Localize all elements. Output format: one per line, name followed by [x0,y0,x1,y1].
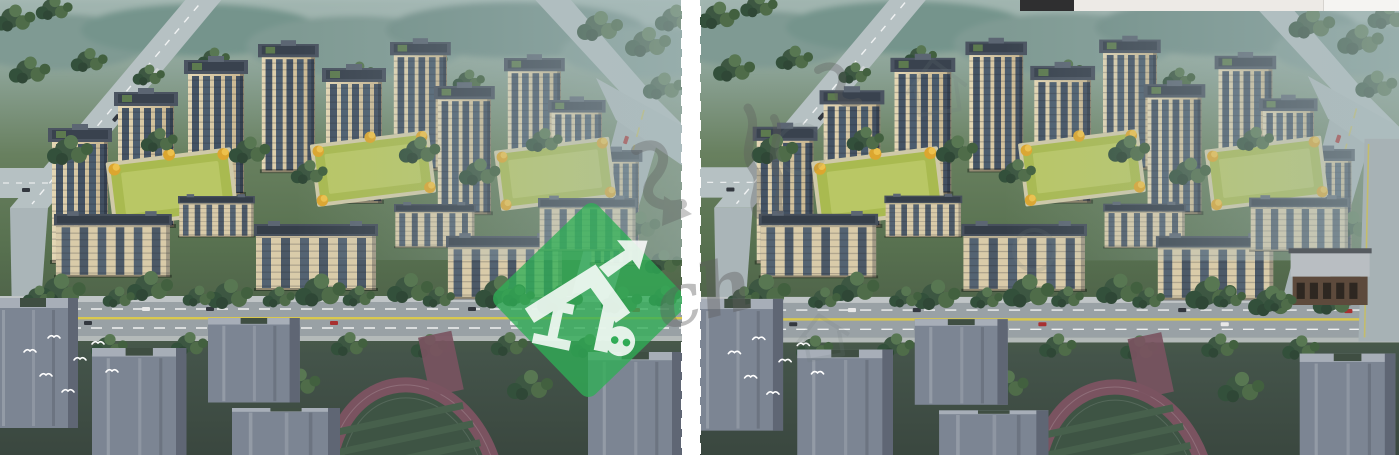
chrome-beige-segment [1074,0,1324,11]
panel-divider [681,0,701,455]
window-chrome-sliver [1020,0,1399,11]
render-image-left [0,0,682,455]
render-image-right [700,0,1399,455]
chrome-dark-segment [1020,0,1074,11]
aerial-render-right [700,0,1399,455]
aerial-render-left [0,0,682,455]
chrome-light-segment [1324,0,1399,11]
screenshot-stage: ch [0,0,1399,455]
